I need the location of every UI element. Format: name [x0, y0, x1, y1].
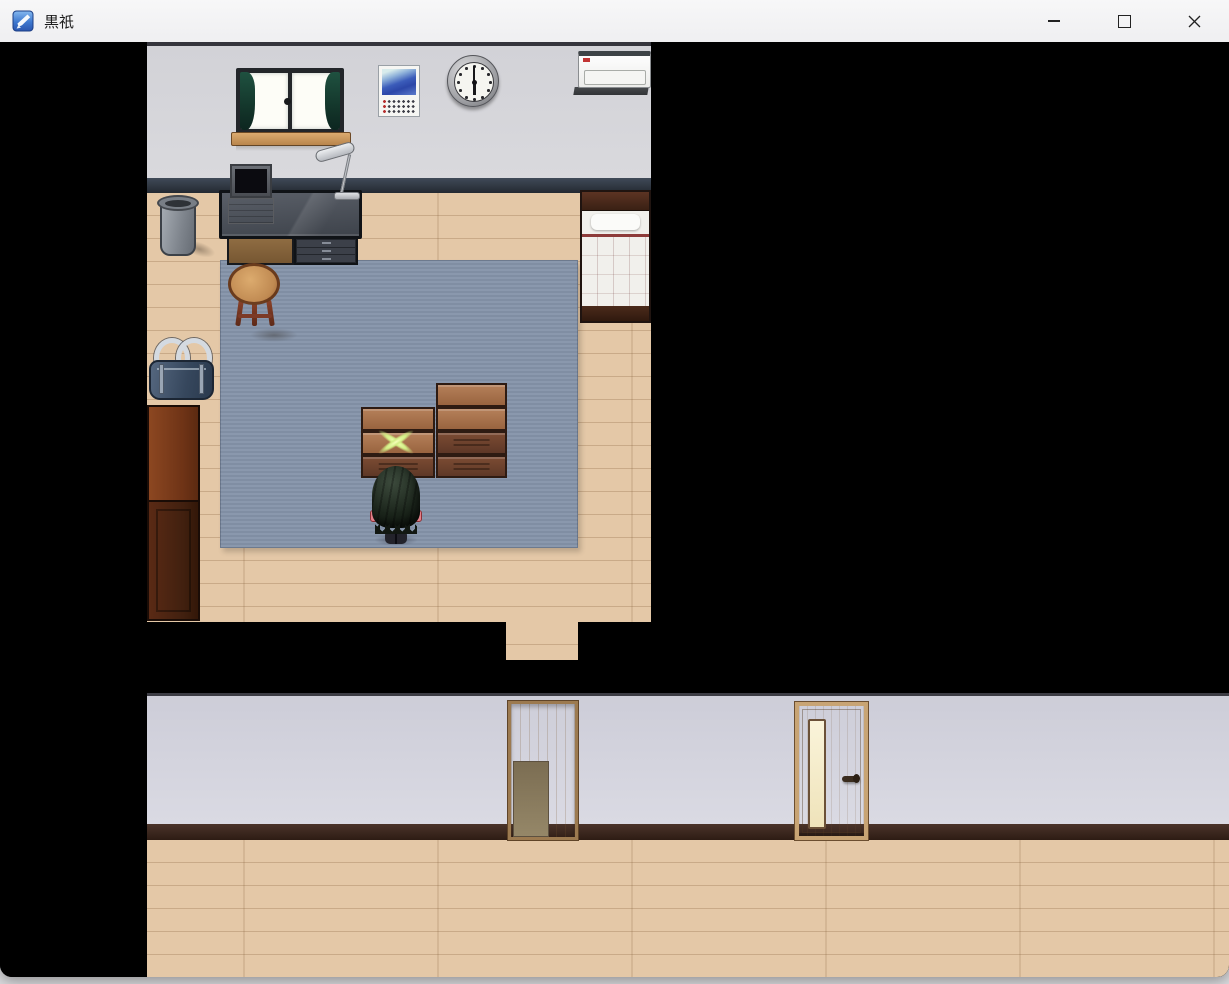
crate — [436, 383, 507, 407]
ac-vent — [584, 70, 646, 85]
computer-base — [228, 198, 274, 224]
close-icon — [1188, 15, 1201, 28]
crate-stack-right[interactable] — [436, 383, 507, 478]
wall-calendar — [378, 65, 420, 117]
clock-face — [454, 62, 494, 102]
minimize-icon — [1048, 20, 1060, 22]
crate — [436, 455, 507, 478]
desk-drawer — [297, 255, 355, 262]
bag-strap — [159, 364, 164, 394]
wardrobe-upper — [149, 407, 198, 502]
round-table[interactable] — [228, 263, 280, 305]
closed-door[interactable] — [795, 702, 868, 840]
desk-underside — [227, 239, 358, 265]
desk-knee-space — [227, 239, 294, 265]
bed-blanket — [582, 234, 649, 313]
hallway-baseboard — [147, 824, 1229, 840]
computer-screen — [235, 169, 267, 193]
desk-drawer — [297, 240, 355, 247]
open-doorway[interactable] — [508, 701, 578, 840]
curtain-right — [325, 72, 340, 130]
minimize-button[interactable] — [1019, 0, 1089, 42]
glowing-x-marker[interactable] — [374, 422, 418, 462]
character-hair — [372, 466, 420, 528]
clock-center — [472, 80, 477, 85]
window-title: 黒祇 — [44, 11, 74, 32]
air-conditioner — [578, 51, 651, 88]
app-icon — [12, 10, 34, 32]
table-shadow — [250, 328, 298, 342]
doorway-opening[interactable] — [513, 761, 549, 837]
bed-headboard — [582, 192, 649, 211]
door-handle[interactable] — [842, 776, 859, 782]
curtained-window — [231, 66, 349, 146]
desk-drawer — [297, 248, 355, 255]
hallway-wall — [147, 693, 1229, 824]
hallway-floor — [147, 840, 1229, 977]
crate — [436, 431, 507, 455]
room-exit-floor[interactable] — [506, 622, 578, 660]
game-window: 黒祇 — [0, 0, 1229, 977]
bag-strap — [199, 364, 204, 394]
wardrobe[interactable] — [147, 405, 200, 621]
titlebar[interactable]: 黒祇 — [0, 0, 1229, 42]
maximize-icon — [1118, 15, 1131, 28]
window-frame — [236, 68, 344, 134]
window-latch — [284, 98, 291, 105]
sports-bag[interactable] — [147, 338, 213, 402]
game-viewport[interactable] — [0, 42, 1229, 977]
clock-hour-hand — [473, 83, 476, 95]
bed-pillow — [591, 214, 640, 230]
door-window-slit — [808, 719, 826, 829]
ac-logo — [583, 58, 590, 62]
desk-drawers — [294, 239, 358, 265]
wall-clock — [447, 55, 499, 107]
close-button[interactable] — [1159, 0, 1229, 42]
window-sill — [231, 132, 351, 146]
calendar-date-grid — [382, 99, 416, 114]
player-character[interactable] — [372, 466, 420, 546]
wardrobe-lower — [149, 502, 198, 619]
bed[interactable] — [580, 190, 651, 323]
desk-lamp-base — [334, 192, 360, 200]
trash-can-rim — [157, 195, 199, 211]
calendar-photo — [382, 69, 416, 95]
window-controls — [1019, 0, 1229, 42]
bed-footboard — [582, 306, 649, 321]
bag-body — [149, 360, 214, 400]
crate — [436, 407, 507, 431]
maximize-button[interactable] — [1089, 0, 1159, 42]
ac-shadow — [573, 87, 648, 95]
computer-monitor[interactable] — [230, 164, 272, 198]
